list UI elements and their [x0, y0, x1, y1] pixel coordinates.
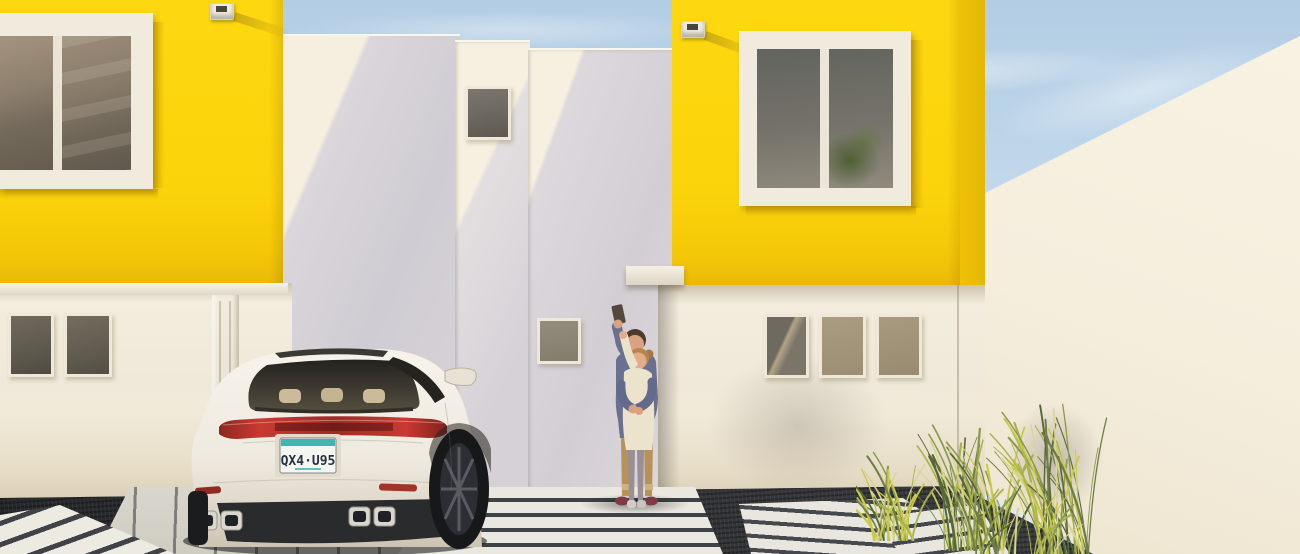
- frame-cast-shadow: [746, 206, 916, 217]
- frame-cast-shadow: [0, 189, 158, 199]
- window-glass-tree-reflection: [829, 49, 893, 188]
- white-suv: QX4·U95: [183, 341, 495, 554]
- man-hand: [635, 407, 643, 415]
- lamp-slot: [687, 24, 698, 30]
- lamp-slot: [216, 6, 227, 12]
- diffuser: [217, 499, 445, 543]
- woman-hand: [619, 331, 627, 339]
- upper-small-window: [465, 86, 511, 140]
- frame-cast-shadow: [911, 40, 924, 208]
- ground-window: [819, 314, 866, 378]
- woman-leg: [628, 450, 635, 502]
- reflector: [379, 483, 417, 491]
- window-glass: [757, 49, 820, 188]
- license-plate: QX4·U95: [280, 438, 336, 473]
- yellow-house-right: [672, 0, 962, 285]
- frame-cast-shadow: [153, 22, 165, 188]
- license-plate-text: QX4·U95: [281, 454, 336, 469]
- yellow-side-face: [960, 0, 985, 285]
- couple-selfie: [588, 298, 680, 512]
- stair-small-window: [537, 318, 581, 364]
- yellow-house-left: [0, 0, 283, 283]
- ground-window: [764, 314, 809, 378]
- man-shoe: [615, 497, 629, 506]
- headrest: [321, 388, 343, 402]
- house-render-scene: QX4·U95: [0, 0, 1300, 554]
- wall-lamp: [210, 3, 234, 20]
- window-mullion: [53, 36, 62, 170]
- soffit-left: [0, 283, 288, 295]
- lamp-shadow: [233, 12, 291, 38]
- headrest: [279, 389, 301, 403]
- large-window-frame: [0, 13, 153, 189]
- side-mirror: [445, 368, 476, 386]
- ground-window: [8, 313, 54, 377]
- ornamental-grass: [856, 374, 1136, 554]
- entry-canopy: [626, 266, 684, 285]
- headrest: [363, 389, 385, 403]
- wall-lamp: [681, 21, 705, 38]
- man-shoe: [644, 497, 658, 506]
- woman-shoe: [627, 500, 636, 508]
- woman-shoe: [637, 500, 646, 508]
- tail-light-center: [275, 423, 393, 431]
- rear-window: [248, 360, 419, 413]
- ground-window: [876, 314, 922, 378]
- ground-window: [64, 313, 112, 377]
- window-mullion: [820, 49, 829, 188]
- woman-leg: [637, 450, 644, 502]
- man-hand: [614, 320, 623, 329]
- window-glass: [0, 36, 53, 170]
- window-glass: [62, 36, 131, 170]
- large-window-frame: [739, 31, 911, 206]
- side-wheel: [429, 429, 489, 549]
- rear-left-wheel: [188, 491, 208, 545]
